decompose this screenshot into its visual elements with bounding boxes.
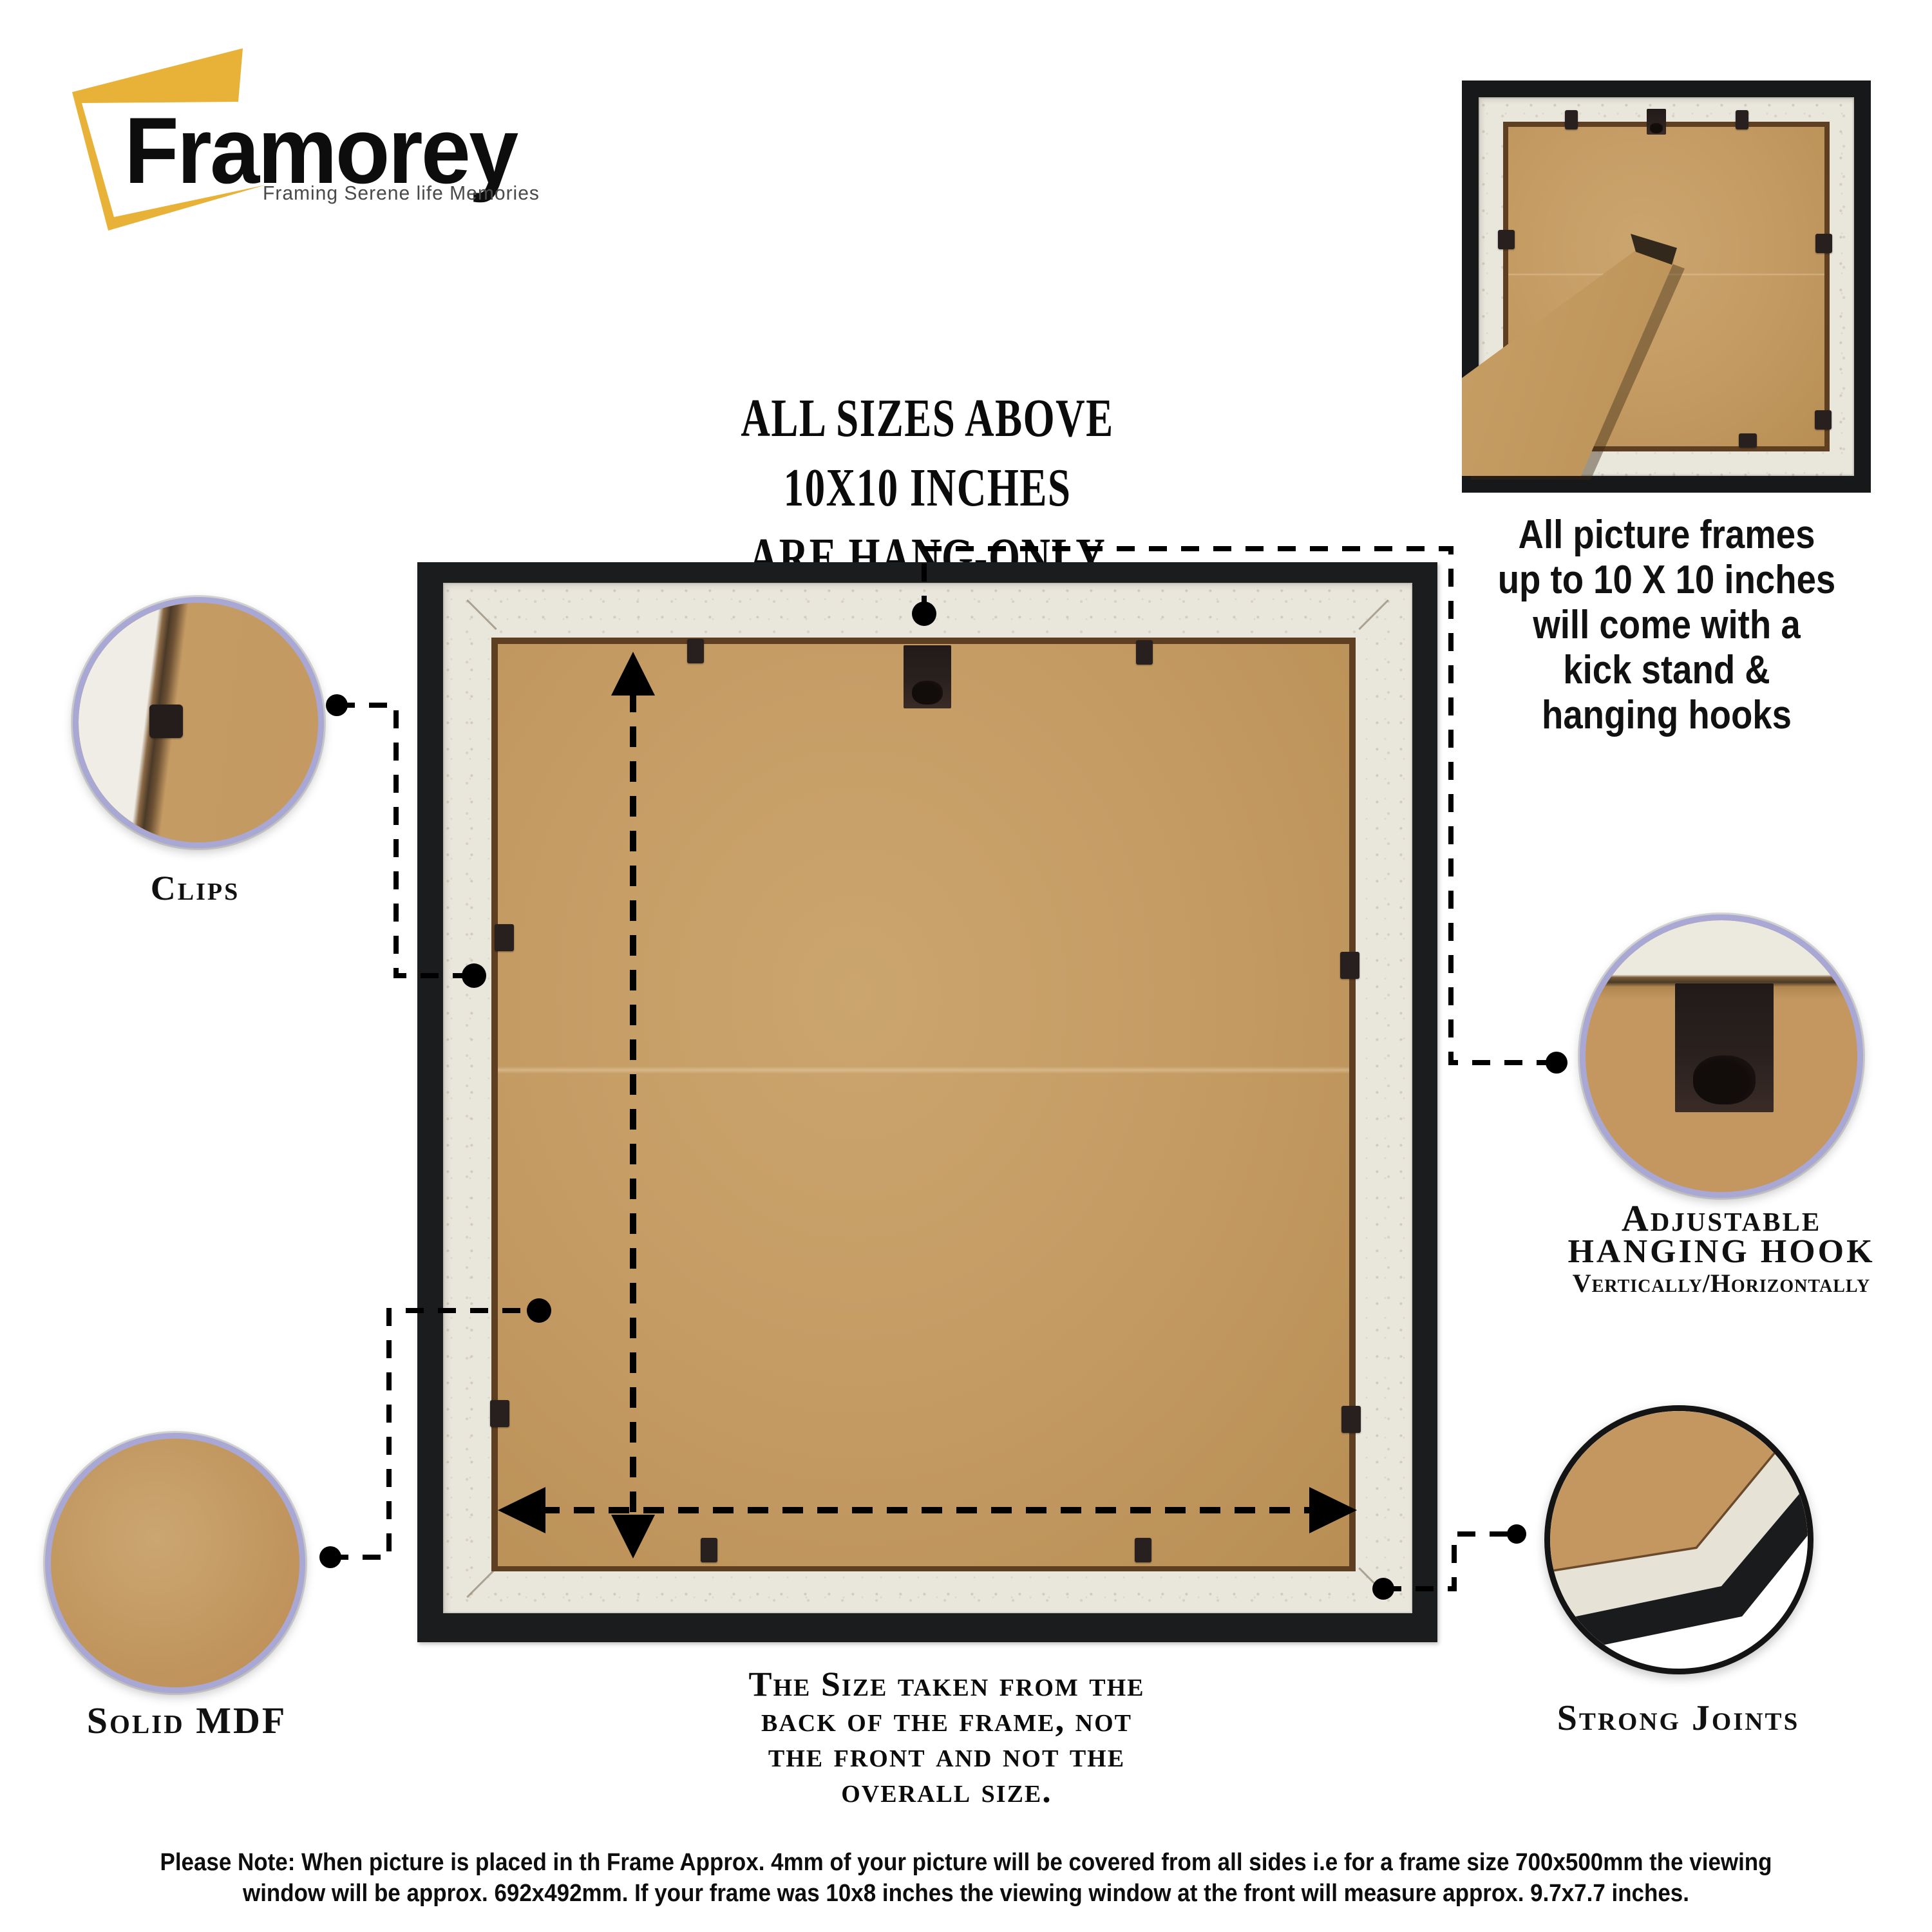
mitre-joint-mark xyxy=(1358,1567,1388,1598)
clips-label: Clips xyxy=(66,868,324,908)
solid-mdf-detail-circle xyxy=(45,1433,305,1693)
adjustable-hook-label-line1: Adjustable xyxy=(1488,1202,1932,1235)
frame-hanging-hook xyxy=(904,645,951,708)
footer-note-line1: Please Note: When picture is placed in t… xyxy=(77,1847,1855,1878)
frame-groove xyxy=(491,638,1356,1571)
clip-closeup xyxy=(149,705,183,738)
kickstand-clip xyxy=(1736,110,1748,129)
joints-zoom-photo xyxy=(1550,1411,1808,1669)
frame-clip xyxy=(1341,1406,1361,1433)
hanging-hook-detail-circle xyxy=(1580,914,1863,1198)
mitre-joint-mark xyxy=(466,1567,497,1598)
adjustable-hook-label: Adjustable hanging hook Vertically/Horiz… xyxy=(1488,1202,1932,1298)
strong-joints-detail-circle xyxy=(1544,1405,1814,1674)
frame-clip xyxy=(490,1400,509,1427)
size-note-line: overall size. xyxy=(612,1773,1282,1808)
kickstand-caption-line: hanging hooks xyxy=(1468,693,1865,738)
clips-detail-circle xyxy=(73,597,324,848)
size-note-line: the front and not the xyxy=(612,1738,1282,1773)
kickstand-frame-photo xyxy=(1462,80,1871,493)
frame-clip xyxy=(701,1538,717,1562)
heading-line-1: ALL SIZES ABOVE xyxy=(686,384,1169,453)
hook-zoom-photo xyxy=(1586,920,1857,1192)
kickstand-caption-line: up to 10 X 10 inches xyxy=(1468,558,1865,603)
kickstand-caption: All picture frames up to 10 X 10 inches … xyxy=(1468,513,1865,738)
size-note: The Size taken from the back of the fram… xyxy=(612,1667,1282,1808)
frame-back-board xyxy=(498,644,1349,1566)
frame-back-photo xyxy=(417,562,1437,1642)
frame-clip xyxy=(1135,1538,1151,1562)
frame-clip xyxy=(1340,952,1359,979)
kickstand-caption-line: kick stand & xyxy=(1468,648,1865,693)
kickstand-clip xyxy=(1815,410,1832,430)
footer-note: Please Note: When picture is placed in t… xyxy=(77,1847,1855,1909)
size-note-line: back of the frame, not xyxy=(612,1702,1282,1738)
kickstand-caption-line: All picture frames xyxy=(1468,513,1865,558)
kickstand-clip xyxy=(1565,110,1578,129)
kickstand-clip xyxy=(1498,230,1515,249)
connector-dot xyxy=(319,1546,341,1568)
solid-mdf-label: Solid MDF xyxy=(13,1699,361,1742)
kickstand-clip xyxy=(1815,234,1832,253)
connector-dot xyxy=(1507,1524,1526,1544)
frame-clip xyxy=(687,639,704,663)
connector-dot xyxy=(1546,1052,1567,1074)
strong-joints-label: Strong Joints xyxy=(1479,1698,1878,1739)
heading-line-2: 10X10 INCHES xyxy=(686,453,1169,523)
mitre-joint-mark xyxy=(1358,600,1388,630)
frame-clip xyxy=(1136,640,1153,665)
kickstand-clip xyxy=(1739,433,1757,448)
frame-clip xyxy=(495,924,514,951)
kickstand-caption-line: will come with a xyxy=(1468,603,1865,648)
framorey-frame-infographic: Framorey Framing Serene life Memories AL… xyxy=(0,0,1932,1932)
connector-dot xyxy=(326,694,348,716)
frame-corner-closeup xyxy=(1550,1411,1808,1669)
adjustable-hook-label-line3: Vertically/Horizontally xyxy=(1488,1269,1932,1298)
hang-only-heading: ALL SIZES ABOVE 10X10 INCHES ARE HANG-ON… xyxy=(686,384,1169,592)
kickstand-hanging-hook xyxy=(1647,109,1666,135)
adjustable-hook-label-line2: hanging hook xyxy=(1488,1235,1932,1269)
footer-note-line2: window will be approx. 692x492mm. If you… xyxy=(77,1878,1855,1909)
hook-closeup xyxy=(1675,983,1774,1112)
size-note-line: The Size taken from the xyxy=(612,1667,1282,1702)
clips-zoom-photo xyxy=(79,603,318,842)
mitre-joint-mark xyxy=(466,600,497,630)
mdf-zoom-photo xyxy=(51,1439,299,1687)
brand-tagline: Framing Serene life Memories xyxy=(263,182,540,205)
